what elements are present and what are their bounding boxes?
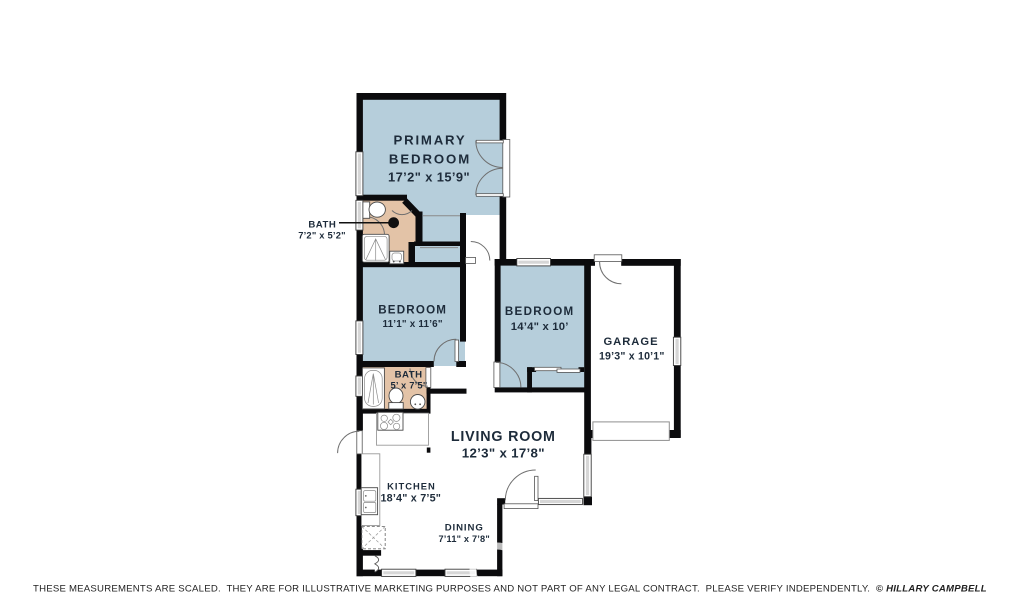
svg-text:17’2" x 15’9": 17’2" x 15’9": [388, 169, 470, 184]
svg-text:12’3" x 17’8": 12’3" x 17’8": [462, 446, 545, 461]
svg-text:DINING: DINING: [445, 523, 484, 534]
svg-text:5’ x 7’5": 5’ x 7’5": [390, 380, 427, 391]
svg-text:PRIMARY: PRIMARY: [394, 133, 467, 148]
svg-text:11’1" x 11’6": 11’1" x 11’6": [382, 319, 442, 330]
svg-text:7’2" x 5’2": 7’2" x 5’2": [298, 230, 346, 241]
svg-text:GARAGE: GARAGE: [603, 336, 658, 348]
svg-text:19’3" x 10’1": 19’3" x 10’1": [599, 351, 665, 363]
svg-text:LIVING ROOM: LIVING ROOM: [451, 429, 556, 445]
svg-text:18’4" x 7’5": 18’4" x 7’5": [380, 493, 441, 505]
svg-text:14’4" x 10’: 14’4" x 10’: [511, 321, 569, 333]
svg-text:7’11" x 7’8": 7’11" x 7’8": [438, 534, 489, 544]
svg-text:KITCHEN: KITCHEN: [387, 480, 436, 491]
svg-text:BEDROOM: BEDROOM: [378, 303, 447, 316]
svg-text:THESE MEASUREMENTS ARE SCALED.: THESE MEASUREMENTS ARE SCALED. THEY ARE …: [33, 584, 987, 594]
svg-text:BEDROOM: BEDROOM: [389, 152, 471, 167]
svg-text:BEDROOM: BEDROOM: [505, 305, 575, 318]
